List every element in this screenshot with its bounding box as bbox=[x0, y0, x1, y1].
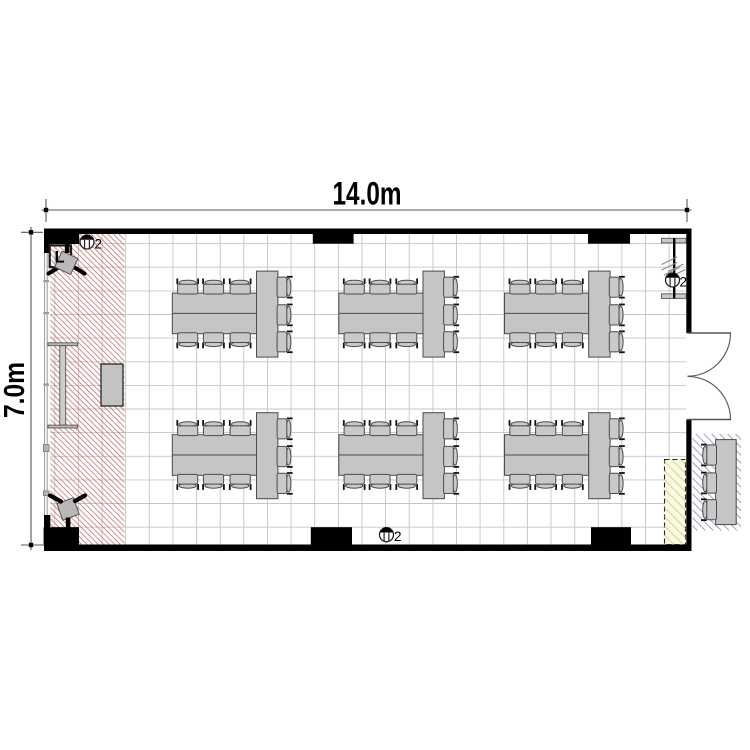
svg-text:7.0m: 7.0m bbox=[0, 362, 31, 418]
svg-text:2: 2 bbox=[680, 275, 688, 290]
svg-text:2: 2 bbox=[394, 529, 402, 544]
svg-text:2: 2 bbox=[95, 237, 103, 252]
svg-text:L: L bbox=[55, 249, 65, 267]
svg-text:14.0m: 14.0m bbox=[333, 176, 402, 212]
